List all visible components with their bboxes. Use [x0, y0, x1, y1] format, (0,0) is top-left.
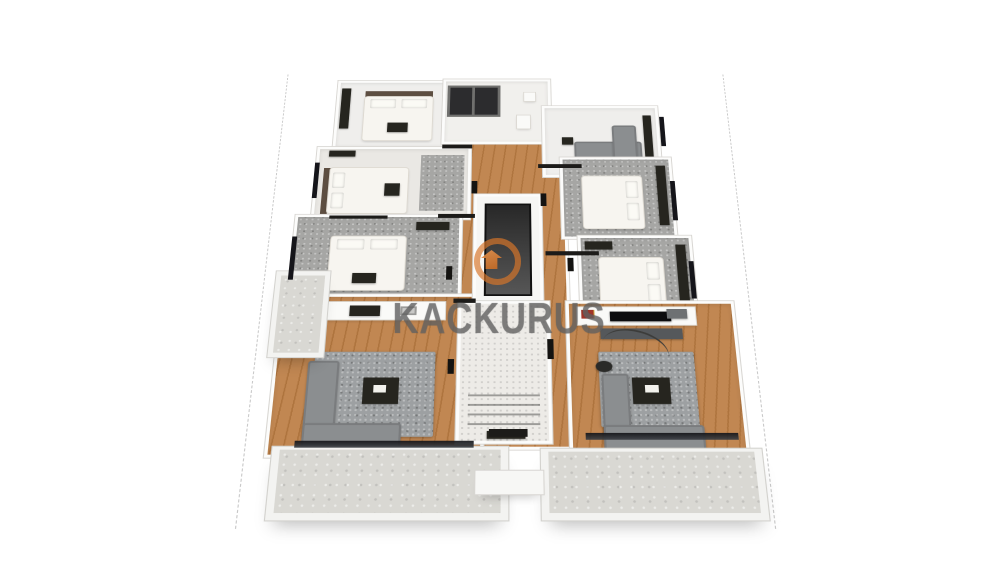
- bathroom-top: [444, 81, 549, 141]
- door: [446, 266, 452, 280]
- entry-step: [475, 471, 543, 495]
- wall-cap: [545, 251, 598, 255]
- wardrobe: [416, 222, 449, 230]
- wall-cap: [489, 429, 528, 437]
- bedroom-right-1: [563, 160, 675, 237]
- bedroom-left-2: [314, 149, 469, 217]
- bed: [327, 168, 409, 213]
- pillow: [626, 203, 640, 220]
- glass-door: [294, 441, 474, 448]
- bedroom-top-left: [335, 83, 447, 146]
- toilet: [517, 115, 530, 128]
- bed: [582, 176, 645, 228]
- floor-lamp-head: [595, 361, 612, 372]
- stair-step: [468, 404, 540, 406]
- door: [447, 359, 454, 374]
- balcony-side-left: [267, 271, 330, 357]
- wardrobe: [329, 151, 356, 157]
- pillow: [625, 181, 639, 198]
- pillow: [647, 284, 661, 302]
- pillow: [646, 262, 660, 280]
- sofa-chaise: [612, 126, 639, 165]
- pillow: [332, 173, 346, 188]
- bed-bench: [352, 273, 377, 283]
- bed-tray: [387, 123, 408, 132]
- kackurus-logo-icon: [474, 238, 521, 285]
- balcony-bottom-right: [541, 449, 770, 521]
- bed: [599, 258, 666, 309]
- door: [471, 181, 477, 193]
- watermark-text: KACKURUS: [392, 297, 605, 341]
- stair-step: [468, 394, 540, 396]
- pillow: [401, 99, 427, 108]
- bed: [362, 97, 433, 140]
- pillow: [336, 239, 364, 250]
- wardrobe: [339, 88, 352, 128]
- stair-step: [468, 413, 540, 415]
- bed-tray: [384, 183, 400, 195]
- table-decor: [645, 385, 659, 393]
- wardrobe: [655, 166, 669, 225]
- pillow: [370, 239, 398, 250]
- window: [659, 117, 666, 146]
- cooktop: [349, 305, 380, 315]
- bed: [327, 236, 406, 289]
- skylight-window: [447, 86, 501, 117]
- side-table: [562, 137, 573, 144]
- wall-shelf: [666, 309, 687, 319]
- table-decor: [373, 385, 386, 393]
- dresser: [585, 241, 613, 249]
- glass-door: [586, 433, 739, 440]
- floor-plan-render: KACKURUS: [0, 0, 1000, 563]
- door: [567, 258, 573, 271]
- coffee-table: [632, 378, 672, 404]
- stair-step: [468, 423, 541, 425]
- wall-cap: [329, 215, 387, 218]
- wardrobe: [675, 245, 690, 304]
- wall-cap: [442, 145, 472, 149]
- window-mullion: [472, 86, 475, 117]
- pillow: [370, 99, 396, 108]
- wall-cap: [538, 164, 582, 168]
- door: [540, 193, 546, 206]
- tv: [610, 312, 672, 322]
- carpet: [419, 155, 465, 211]
- pillow: [330, 193, 344, 209]
- wardrobe: [642, 115, 654, 158]
- wall-cap: [438, 214, 475, 218]
- sink: [524, 93, 535, 101]
- balcony-bottom-left: [265, 447, 508, 521]
- coffee-table: [362, 378, 399, 404]
